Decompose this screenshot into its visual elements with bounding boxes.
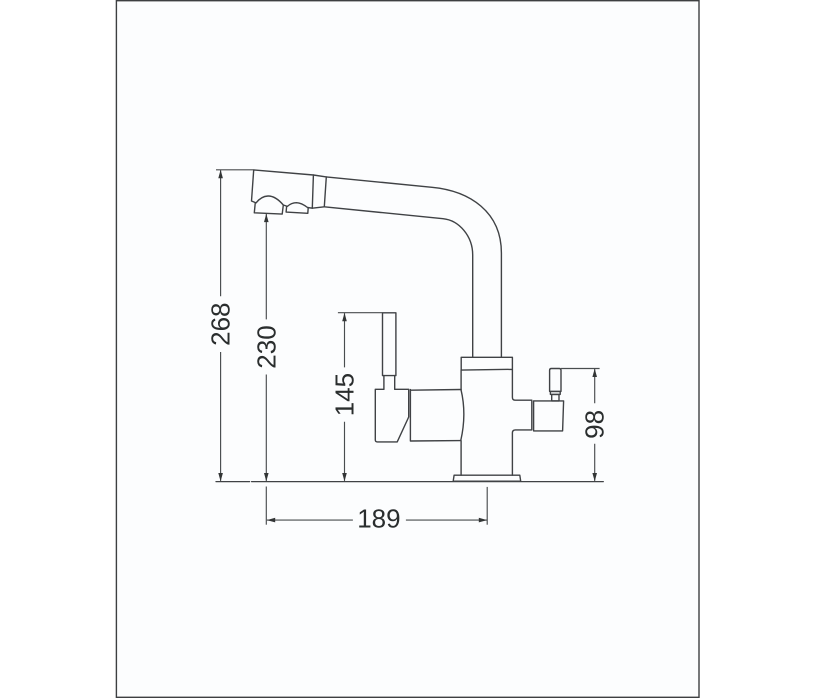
svg-text:98: 98 (580, 410, 610, 439)
svg-text:230: 230 (251, 325, 281, 368)
svg-text:268: 268 (206, 303, 236, 346)
svg-text:189: 189 (357, 504, 400, 534)
svg-text:145: 145 (330, 373, 360, 416)
